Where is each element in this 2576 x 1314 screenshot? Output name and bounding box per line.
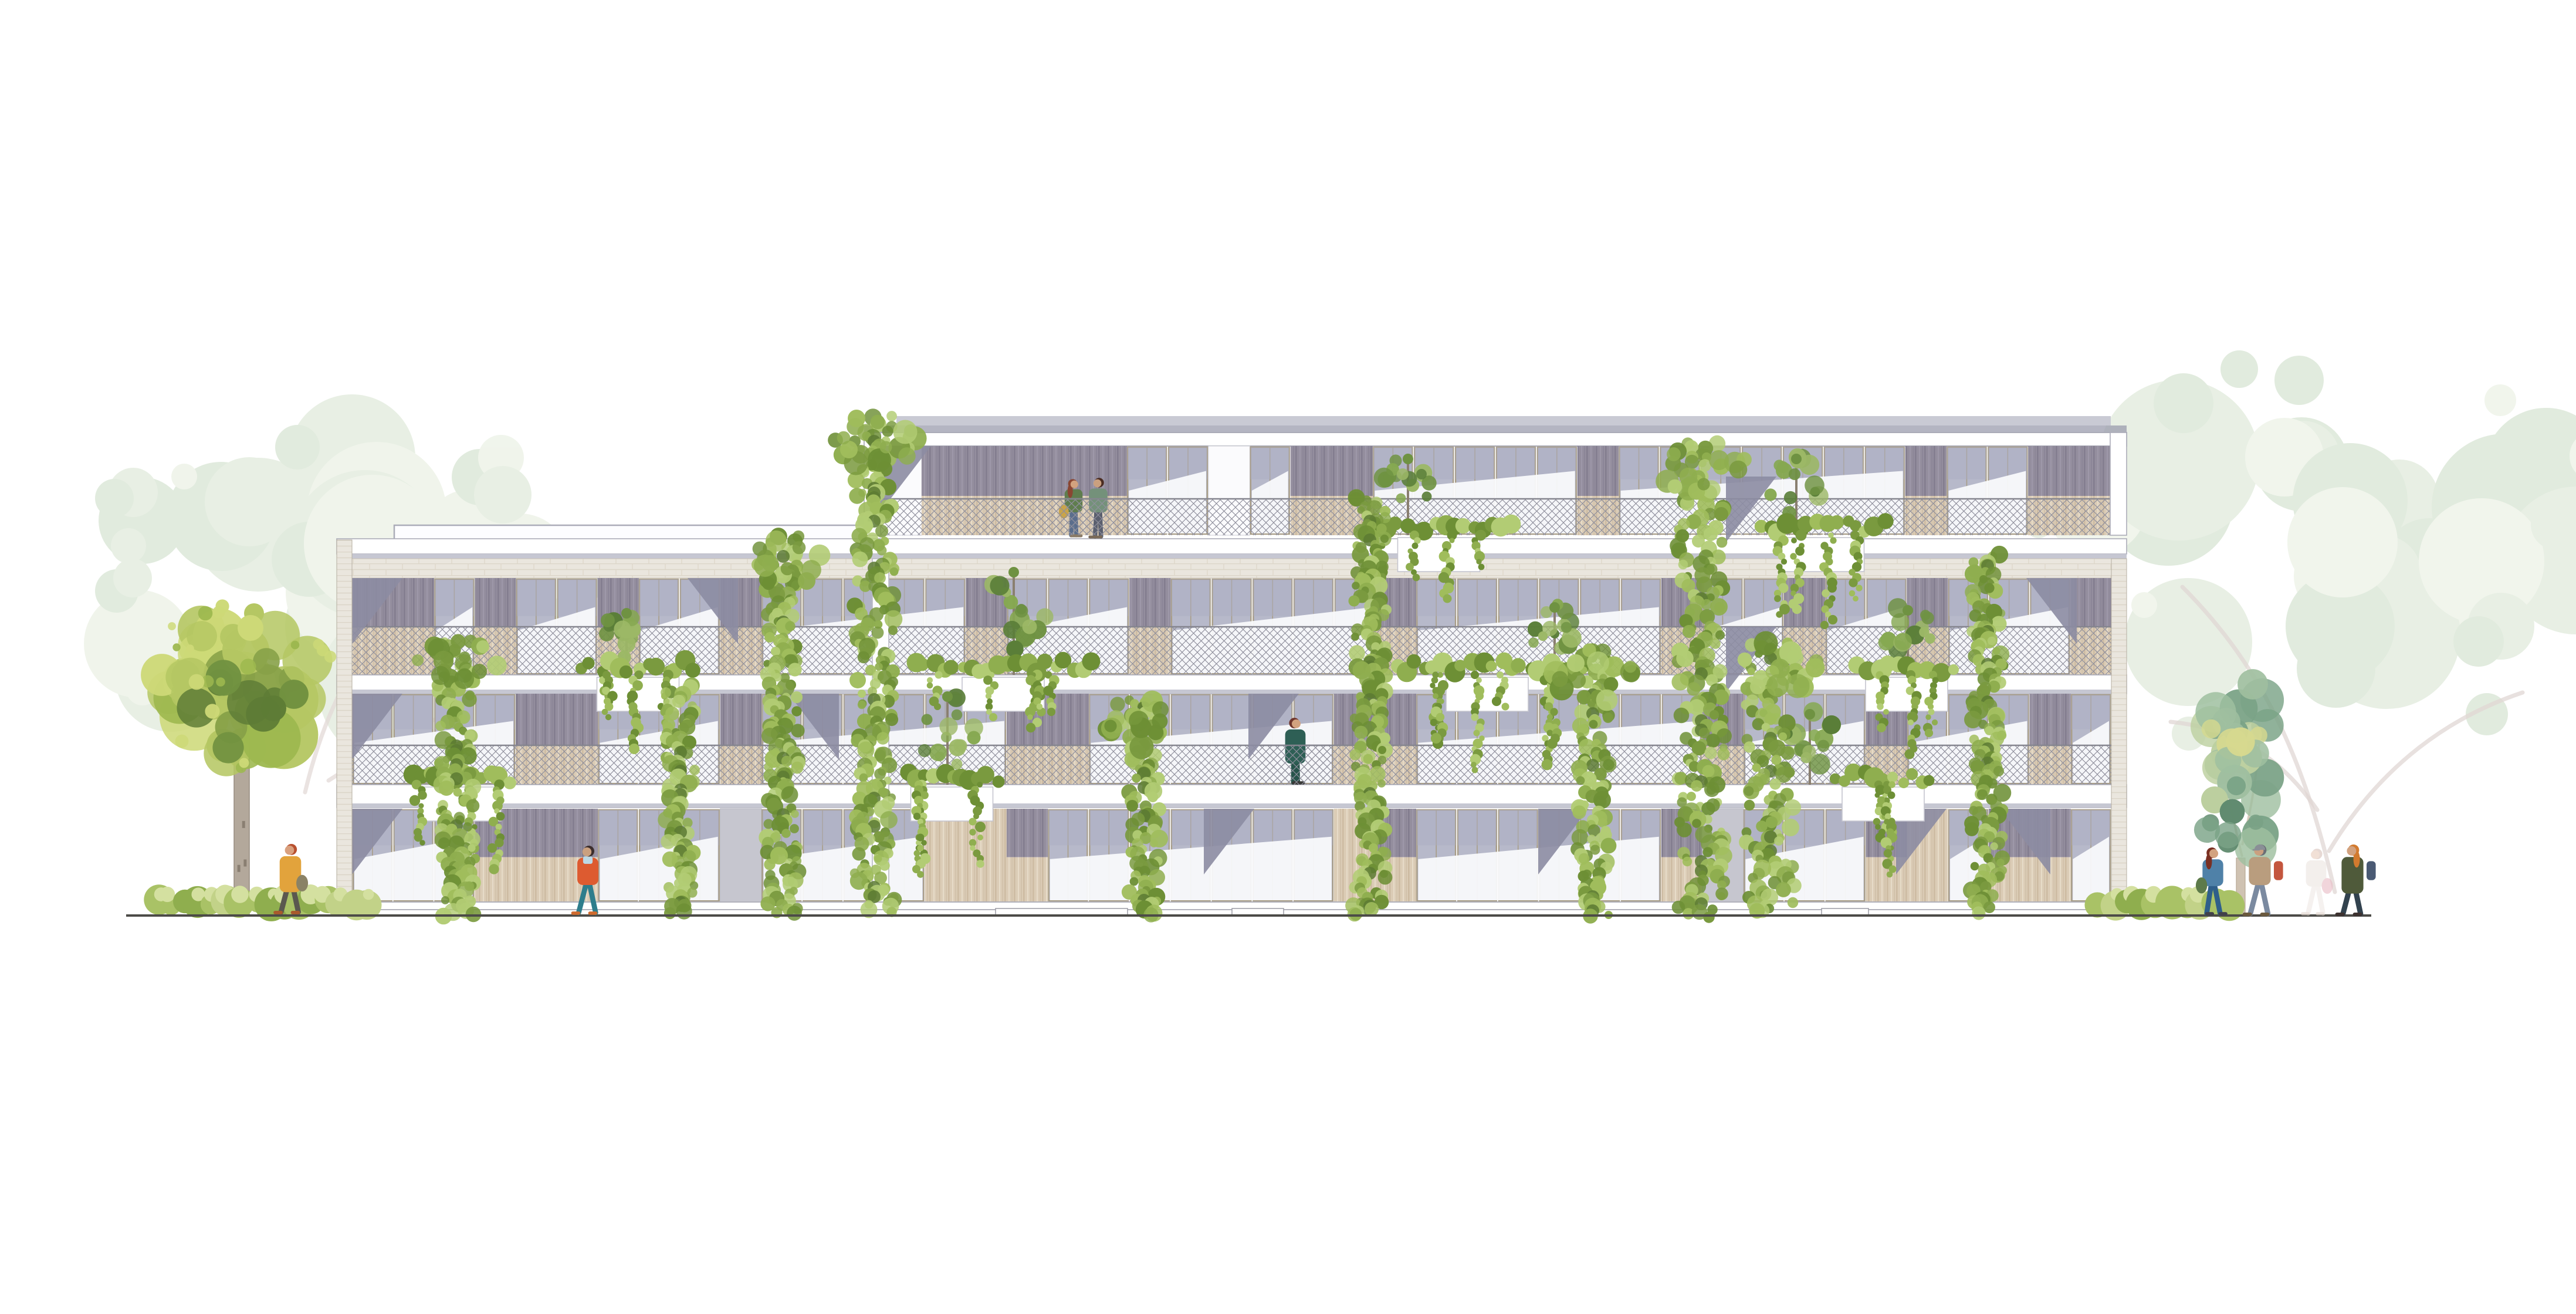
wood-slat-panel bbox=[393, 578, 434, 627]
leaf-blob bbox=[291, 641, 300, 650]
wood-slat-panel bbox=[1044, 446, 1085, 496]
bark-mark bbox=[238, 865, 241, 872]
roof-slab-upper bbox=[896, 416, 2111, 425]
right-brick-pier bbox=[2111, 559, 2127, 916]
leaf-blob bbox=[489, 864, 499, 874]
leaf-blob bbox=[793, 541, 806, 555]
leaf-blob bbox=[1993, 766, 2004, 776]
foliage-blob bbox=[2131, 592, 2157, 618]
leaf-blob bbox=[664, 907, 676, 919]
leaf-blob bbox=[1920, 610, 1931, 620]
leaf-blob bbox=[1888, 792, 1895, 799]
leaf-blob bbox=[1380, 535, 1389, 543]
leaf-blob bbox=[859, 773, 868, 782]
leaf-blob bbox=[852, 552, 868, 568]
leaf-blob bbox=[1377, 779, 1386, 788]
planter-box bbox=[1446, 677, 1528, 711]
leaf-blob bbox=[1587, 651, 1609, 674]
leaf-blob bbox=[1779, 732, 1787, 741]
leaf-blob bbox=[1704, 782, 1719, 797]
leaf-blob bbox=[918, 744, 931, 757]
leaf-blob bbox=[1150, 839, 1158, 847]
head bbox=[2311, 850, 2320, 859]
leaf-blob bbox=[917, 871, 924, 878]
leaf-blob bbox=[848, 410, 865, 427]
leaf-blob bbox=[282, 636, 332, 685]
backpack bbox=[2274, 861, 2283, 880]
leaf-blob bbox=[791, 706, 801, 716]
leaf-blob bbox=[1883, 709, 1889, 715]
leaf-blob bbox=[614, 620, 631, 637]
foliage-blob bbox=[95, 479, 134, 518]
leaf-blob bbox=[1887, 772, 1898, 782]
leaf-blob bbox=[1965, 822, 1979, 836]
head bbox=[2347, 846, 2356, 856]
glass-tint bbox=[1128, 447, 1166, 479]
leaf-blob bbox=[1766, 674, 1789, 697]
leaf-blob bbox=[1047, 708, 1055, 716]
leaf-blob bbox=[1363, 754, 1373, 764]
leaf-blob bbox=[1830, 537, 1836, 543]
service-panel bbox=[720, 809, 761, 902]
leaf-blob bbox=[1474, 730, 1480, 737]
leaf-blob bbox=[1132, 773, 1140, 782]
foliage-blob bbox=[2297, 629, 2375, 708]
leaf-blob bbox=[1805, 475, 1824, 495]
leaf-blob bbox=[1849, 578, 1857, 587]
leaf-blob bbox=[602, 709, 608, 715]
leaf-blob bbox=[1577, 690, 1592, 705]
roof-slab-edge bbox=[864, 425, 2127, 433]
leaf-blob bbox=[1776, 882, 1791, 897]
leaf-blob bbox=[1791, 454, 1802, 464]
leaf-blob bbox=[1603, 712, 1613, 723]
leaf-blob bbox=[1082, 653, 1101, 671]
leaf-blob bbox=[1492, 697, 1501, 706]
leaf-blob bbox=[212, 732, 243, 763]
leaf-blob bbox=[1552, 671, 1568, 687]
leaf-blob bbox=[324, 651, 336, 663]
leaf-blob bbox=[1023, 620, 1037, 634]
wood-slat-panel bbox=[557, 694, 598, 745]
leaf-blob bbox=[1349, 596, 1360, 607]
leaf-blob bbox=[1830, 515, 1844, 529]
leaf-blob bbox=[605, 714, 611, 720]
leaf-blob bbox=[2202, 720, 2221, 739]
wood-slat-panel bbox=[2069, 446, 2110, 496]
foliage-blob bbox=[2154, 373, 2213, 433]
glass-tint bbox=[1253, 810, 1292, 845]
leaf-blob bbox=[1853, 596, 1859, 602]
leaf-blob bbox=[1667, 447, 1681, 461]
leaf-blob bbox=[1764, 488, 1776, 501]
leaf-blob bbox=[1130, 877, 1139, 886]
leaf-blob bbox=[875, 663, 883, 671]
foliage-blob bbox=[2274, 356, 2324, 405]
wood-slat-panel bbox=[1578, 446, 1619, 496]
leaf-blob bbox=[1110, 697, 1125, 711]
leaf-blob bbox=[1718, 748, 1730, 761]
leaf-blob bbox=[1668, 479, 1683, 494]
leaf-blob bbox=[1567, 654, 1585, 672]
backpack bbox=[2367, 861, 2376, 880]
leaf-blob bbox=[977, 782, 983, 788]
leaf-blob bbox=[582, 657, 594, 669]
building-elevation-drawing bbox=[0, 0, 2576, 1314]
foliage-blob bbox=[171, 464, 197, 489]
leaf-blob bbox=[419, 840, 425, 846]
leaf-blob bbox=[1433, 693, 1438, 699]
leaf-blob bbox=[1472, 767, 1478, 773]
leaf-blob bbox=[246, 697, 281, 732]
leaf-blob bbox=[1471, 714, 1479, 721]
leaf-blob bbox=[1412, 543, 1419, 549]
leaf-blob bbox=[496, 824, 502, 830]
leaf-blob bbox=[1948, 664, 1959, 675]
leaf-blob bbox=[1828, 615, 1837, 624]
leaf-blob bbox=[175, 735, 189, 748]
leaf-blob bbox=[1809, 729, 1820, 741]
leaf-blob bbox=[1688, 699, 1704, 715]
leaf-blob bbox=[1678, 560, 1688, 570]
leaf-blob bbox=[439, 781, 454, 796]
leaf-blob bbox=[927, 683, 933, 689]
leaf-blob bbox=[1355, 726, 1368, 739]
leaf-blob bbox=[1422, 492, 1432, 502]
leaf-blob bbox=[1026, 723, 1035, 732]
leaf-blob bbox=[468, 844, 475, 852]
leaf-blob bbox=[1996, 859, 2005, 867]
leaf-blob bbox=[852, 847, 866, 861]
leaf-blob bbox=[1875, 824, 1881, 830]
leaf-blob bbox=[952, 710, 963, 721]
wood-slat-panel bbox=[516, 857, 557, 902]
glass-tint bbox=[517, 579, 556, 616]
head bbox=[1292, 720, 1301, 728]
leaf-blob bbox=[1905, 749, 1915, 759]
handbag bbox=[296, 875, 308, 891]
glass-tint bbox=[1253, 579, 1292, 616]
leaf-blob bbox=[1928, 704, 1934, 710]
leaf-blob bbox=[1126, 800, 1138, 812]
leaf-blob bbox=[629, 744, 639, 754]
foliage-blob bbox=[2484, 384, 2516, 416]
leaf-blob bbox=[1822, 715, 1841, 734]
leaf-blob bbox=[880, 811, 898, 829]
leaf-blob bbox=[893, 420, 918, 444]
leaf-blob bbox=[1828, 532, 1834, 538]
leaf-blob bbox=[1774, 836, 1783, 846]
glass-tint bbox=[1049, 810, 1088, 845]
torso bbox=[2341, 857, 2363, 893]
leaf-blob bbox=[1822, 589, 1830, 597]
leaf-blob bbox=[876, 732, 889, 744]
leaf-blob bbox=[1788, 897, 1798, 908]
leaf-blob bbox=[1015, 604, 1028, 618]
leaf-blob bbox=[1008, 567, 1019, 577]
leaf-blob bbox=[1785, 674, 1809, 698]
leaf-blob bbox=[1796, 530, 1807, 541]
leaf-blob bbox=[1697, 478, 1710, 490]
leaf-blob bbox=[1432, 677, 1438, 684]
leaf-blob bbox=[787, 906, 802, 921]
leaf-blob bbox=[949, 739, 966, 756]
foliage-blob bbox=[113, 559, 152, 597]
leaf-blob bbox=[1547, 714, 1553, 720]
handbag bbox=[2196, 877, 2207, 893]
glass-tint bbox=[1172, 579, 1210, 616]
foliage-blob bbox=[2453, 616, 2504, 667]
leaf-blob bbox=[1431, 733, 1441, 744]
leaf-blob bbox=[1906, 768, 1918, 780]
leaf-blob bbox=[198, 606, 213, 621]
leaf-blob bbox=[1781, 559, 1787, 565]
leaf-blob bbox=[1677, 822, 1692, 837]
leaf-blob bbox=[781, 786, 798, 803]
leaf-blob bbox=[238, 615, 263, 641]
leaf-blob bbox=[2227, 776, 2246, 795]
leaf-blob bbox=[1748, 668, 1755, 675]
leaf-blob bbox=[313, 639, 324, 650]
foliage-blob bbox=[474, 466, 532, 523]
leaf-blob bbox=[1738, 653, 1752, 667]
leaf-blob bbox=[1687, 792, 1696, 801]
leaf-blob bbox=[888, 626, 898, 635]
leaf-blob bbox=[1403, 454, 1413, 464]
leaf-blob bbox=[1744, 800, 1755, 810]
leaf-blob bbox=[939, 717, 957, 735]
leaf-blob bbox=[1803, 745, 1816, 759]
leaf-blob bbox=[434, 758, 444, 768]
leaf-blob bbox=[1152, 701, 1169, 718]
leaf-blob bbox=[1502, 703, 1509, 711]
foliage-blob bbox=[275, 425, 320, 469]
leaf-blob bbox=[1369, 766, 1385, 782]
leaf-blob bbox=[1877, 703, 1884, 710]
hedge-blob bbox=[363, 889, 374, 900]
foliage-blob bbox=[2499, 545, 2543, 589]
leaf-blob bbox=[1547, 738, 1558, 749]
leaf-blob bbox=[1576, 776, 1585, 785]
glass-tint bbox=[1948, 447, 1986, 479]
leaf-blob bbox=[189, 674, 205, 690]
leaf-blob bbox=[2220, 799, 2245, 825]
leaf-blob bbox=[1596, 690, 1618, 711]
leaf-blob bbox=[790, 824, 799, 833]
glass-tint bbox=[1172, 695, 1210, 729]
leaf-blob bbox=[942, 691, 953, 702]
leaf-blob bbox=[1977, 789, 1988, 800]
leaf-blob bbox=[661, 687, 671, 698]
leg bbox=[2308, 886, 2314, 913]
glass-tint bbox=[1620, 447, 1658, 479]
leaf-blob bbox=[1878, 635, 1894, 651]
leaf-blob bbox=[240, 658, 256, 674]
leaf-blob bbox=[764, 859, 775, 870]
leaf-blob bbox=[1971, 862, 1979, 871]
leaf-blob bbox=[685, 663, 700, 678]
leaf-blob bbox=[215, 599, 229, 613]
leaf-blob bbox=[1849, 590, 1856, 597]
leaf-blob bbox=[1671, 673, 1688, 690]
glass-tint bbox=[1458, 579, 1497, 616]
leaf-blob bbox=[1443, 594, 1452, 603]
leaf-blob bbox=[1713, 664, 1728, 679]
leaf-blob bbox=[1789, 468, 1800, 480]
glass-tint bbox=[1417, 810, 1455, 845]
leaf-blob bbox=[1903, 605, 1913, 616]
leaf-blob bbox=[1925, 729, 1933, 737]
leaf-blob bbox=[1374, 468, 1394, 488]
leaf-blob bbox=[1455, 518, 1471, 533]
leaf-blob bbox=[1715, 630, 1725, 640]
leaf-blob bbox=[435, 721, 446, 731]
leaf-blob bbox=[858, 651, 870, 664]
leaf-blob bbox=[1683, 625, 1695, 638]
leaf-blob bbox=[676, 903, 692, 919]
leaf-blob bbox=[781, 562, 794, 576]
torso bbox=[2249, 857, 2270, 885]
leaf-blob bbox=[927, 677, 933, 683]
head bbox=[285, 846, 295, 855]
leaf-blob bbox=[1984, 583, 1994, 593]
leaf-blob bbox=[849, 488, 865, 504]
glass-tint bbox=[1213, 695, 1251, 729]
leaf-blob bbox=[898, 447, 915, 464]
leaf-blob bbox=[886, 411, 897, 421]
leaf-blob bbox=[1407, 654, 1421, 669]
leaf-blob bbox=[462, 692, 476, 707]
foliage-blob bbox=[111, 528, 146, 563]
leaf-blob bbox=[872, 627, 884, 639]
leaf-blob bbox=[1603, 759, 1614, 770]
leaf-blob bbox=[1589, 720, 1598, 729]
leaf-blob bbox=[1924, 775, 1935, 786]
leaf-blob bbox=[1792, 604, 1802, 614]
leaf-blob bbox=[1542, 759, 1553, 771]
left-brick-pier bbox=[337, 540, 352, 916]
leaf-blob bbox=[1396, 494, 1406, 504]
leaf-blob bbox=[1702, 765, 1715, 778]
railing-over-person bbox=[1063, 499, 1133, 535]
leaf-blob bbox=[205, 704, 219, 718]
leaf-blob bbox=[1885, 813, 1891, 820]
wood-slat-panel bbox=[925, 809, 966, 902]
leaf-blob bbox=[1680, 468, 1698, 486]
head bbox=[2209, 849, 2218, 858]
leaf-blob bbox=[1687, 682, 1700, 695]
leaf-blob bbox=[2248, 815, 2263, 830]
leaf-blob bbox=[771, 647, 780, 656]
glass-tint bbox=[1622, 695, 1660, 729]
leaf-blob bbox=[1714, 507, 1728, 521]
leaf-blob bbox=[1674, 708, 1690, 724]
leaf-blob bbox=[874, 768, 886, 780]
wood-slat-panel bbox=[1004, 446, 1045, 496]
glass-tint bbox=[1089, 810, 1128, 845]
foliage-blob bbox=[205, 457, 294, 546]
leaf-blob bbox=[969, 818, 977, 826]
leaf-blob bbox=[1766, 816, 1778, 828]
leaf-blob bbox=[1750, 679, 1765, 694]
railing-over-person bbox=[1260, 745, 1331, 785]
top-floor-parapet bbox=[864, 433, 2127, 446]
leaf-blob bbox=[1549, 602, 1560, 613]
wood-slat-panel bbox=[1007, 809, 1048, 857]
leaf-blob bbox=[1430, 719, 1438, 727]
leaf-blob bbox=[1908, 720, 1914, 725]
leaf-blob bbox=[975, 822, 986, 832]
wood-slat-panel bbox=[475, 578, 516, 627]
leaf-blob bbox=[762, 555, 778, 572]
leaf-blob bbox=[1856, 585, 1862, 591]
glass-tint bbox=[598, 810, 637, 845]
leaf-blob bbox=[943, 660, 958, 674]
wood-slat-panel bbox=[516, 694, 557, 745]
leaf-blob bbox=[1478, 564, 1485, 570]
leaf-blob bbox=[466, 799, 480, 813]
glass-tint bbox=[1580, 579, 1619, 616]
wood-slat-panel bbox=[2030, 694, 2071, 745]
leaf-blob bbox=[1378, 870, 1393, 885]
foliage-blob bbox=[2220, 350, 2258, 388]
leaf-blob bbox=[186, 644, 194, 653]
leaf-blob bbox=[1817, 740, 1830, 752]
bark-mark bbox=[243, 859, 246, 866]
leaf-blob bbox=[1624, 661, 1637, 673]
wood-slat-panel bbox=[2028, 446, 2069, 496]
leaf-blob bbox=[849, 672, 866, 688]
leaf-blob bbox=[986, 693, 991, 699]
leaf-blob bbox=[1037, 654, 1052, 669]
leaf-blob bbox=[788, 663, 801, 676]
leg bbox=[2318, 886, 2323, 913]
leaf-blob bbox=[503, 776, 516, 789]
leaf-blob bbox=[1791, 538, 1797, 543]
leaf-blob bbox=[1397, 468, 1409, 480]
leaf-blob bbox=[409, 795, 420, 806]
leaf-blob bbox=[766, 531, 787, 552]
leaf-blob bbox=[1692, 819, 1701, 828]
wood-slat-panel bbox=[1007, 857, 1048, 902]
leaf-blob bbox=[1898, 778, 1909, 788]
leaf-blob bbox=[885, 610, 903, 629]
leg bbox=[2250, 884, 2258, 914]
leaf-blob bbox=[621, 608, 632, 619]
wood-slat-panel bbox=[1905, 446, 1947, 496]
leaf-blob bbox=[1148, 725, 1164, 741]
leaf-blob bbox=[882, 426, 893, 437]
leaf-blob bbox=[1795, 546, 1805, 556]
leaf-blob bbox=[858, 690, 866, 698]
leaf-blob bbox=[1528, 637, 1539, 648]
leaf-blob bbox=[1538, 631, 1548, 641]
leaf-blob bbox=[1147, 792, 1158, 802]
leaf-blob bbox=[1027, 714, 1033, 720]
leaf-blob bbox=[1769, 778, 1780, 789]
leaf-blob bbox=[1702, 847, 1712, 857]
leaf-blob bbox=[253, 648, 280, 675]
leaf-blob bbox=[976, 860, 984, 868]
leaf-blob bbox=[858, 701, 866, 709]
foliage-blob bbox=[2287, 487, 2398, 597]
wood-slat-panel bbox=[720, 694, 761, 745]
leaf-blob bbox=[935, 671, 943, 679]
leaf-blob bbox=[791, 691, 803, 703]
leaf-blob bbox=[1351, 633, 1359, 641]
leaf-blob bbox=[1780, 746, 1795, 760]
leaf-blob bbox=[601, 613, 615, 627]
